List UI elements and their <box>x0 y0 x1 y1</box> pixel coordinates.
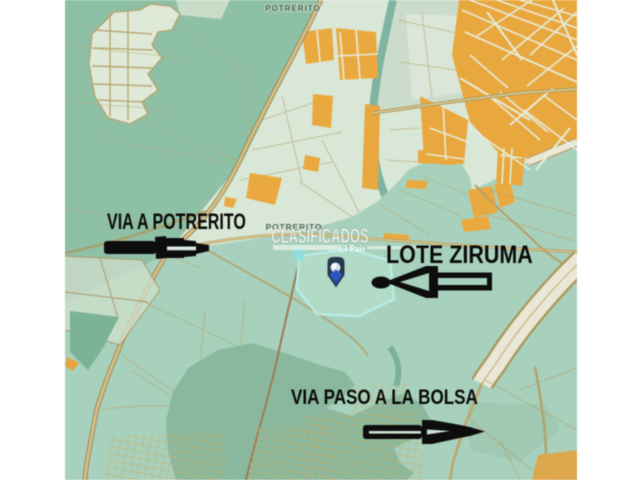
svg-text:VIA A POTRERITO: VIA A POTRERITO <box>107 211 246 235</box>
svg-text:POTRERITO: POTRERITO <box>265 4 321 13</box>
svg-text:VIA PASO A LA BOLSA: VIA PASO A LA BOLSA <box>291 386 478 409</box>
svg-text:LOTE ZIRUMA: LOTE ZIRUMA <box>386 240 533 268</box>
svg-text:El País: El País <box>339 244 366 254</box>
